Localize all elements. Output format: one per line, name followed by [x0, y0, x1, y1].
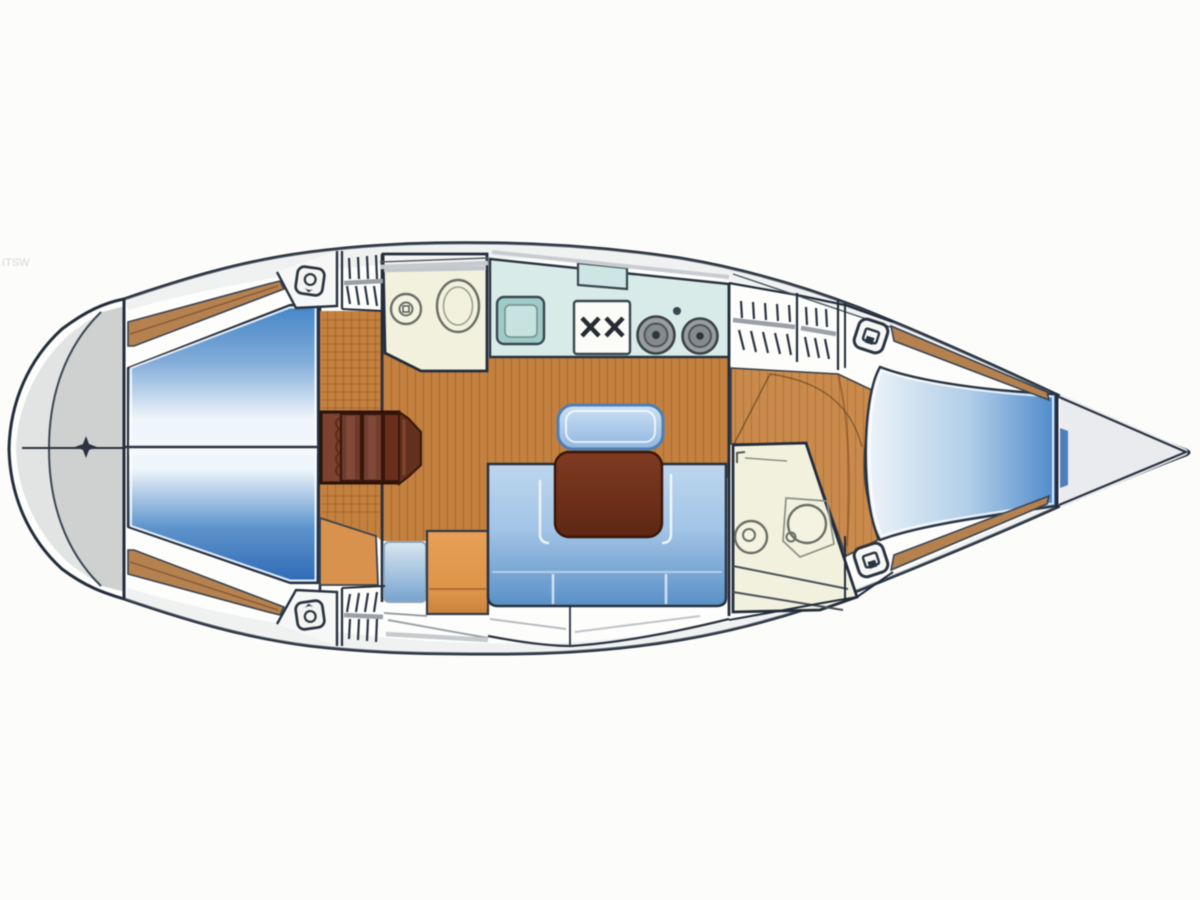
svg-text:ITSW: ITSW: [2, 257, 30, 269]
